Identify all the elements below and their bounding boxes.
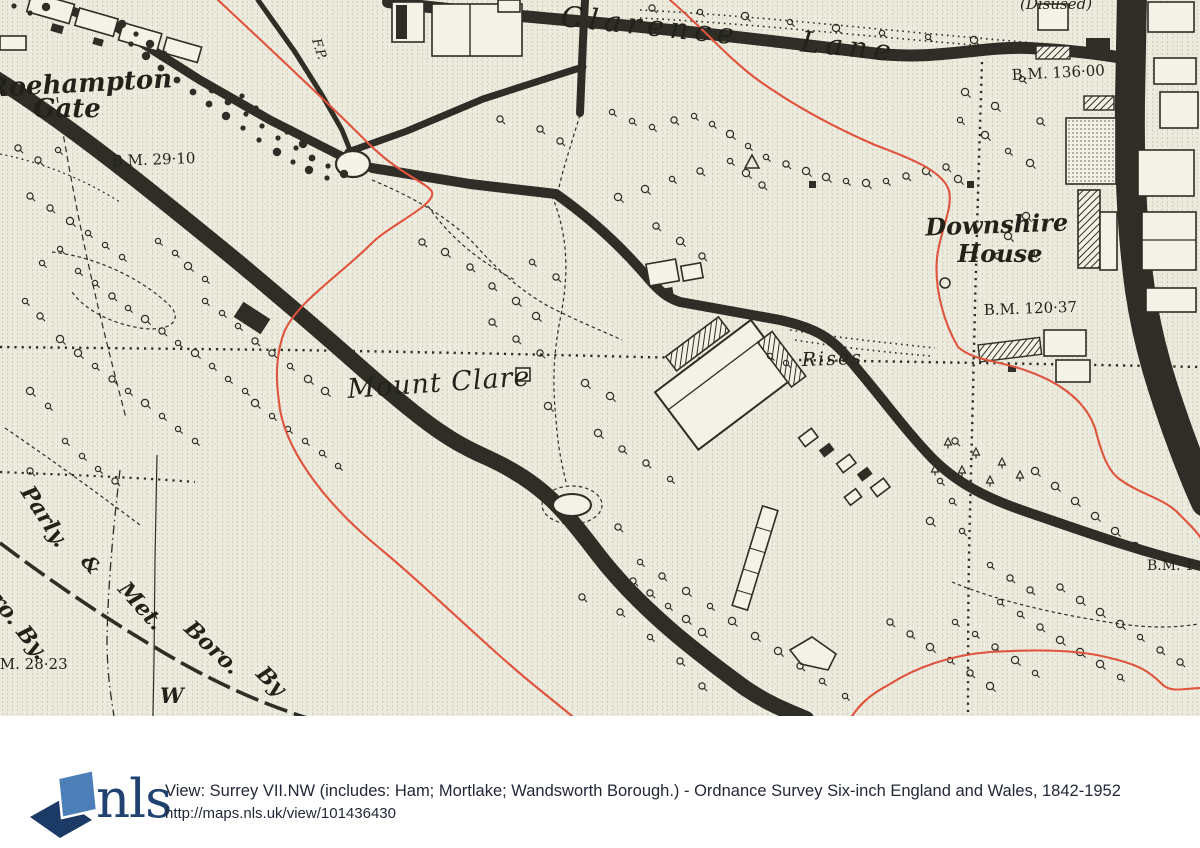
label-disused: (Disused) (1020, 0, 1092, 13)
footer-caption: View: Surrey VII.NW (includes: Ham; Mort… (165, 782, 1121, 822)
map-drawing: Roehampton Gate B.M. 29·10 Clarence Lane… (0, 0, 1200, 716)
label-boro: Boro. (178, 615, 245, 680)
label-w: W (160, 683, 186, 708)
label-downshire: Downshire (924, 208, 1069, 242)
label-by: By (250, 660, 293, 703)
label-parly: Parly. (14, 480, 73, 552)
label-gate: Gate (33, 94, 101, 124)
nls-logo-text: nls (96, 766, 171, 835)
label-bm-edge: B.M. 1 (1147, 558, 1194, 574)
label-bm-136: B.M. 136·00 (1011, 61, 1105, 84)
field-boundaries (0, 10, 1198, 627)
label-bm-28: B.M. 28·23 (0, 655, 68, 673)
buildings-layer (0, 0, 1198, 670)
label-rises: Rises (800, 347, 863, 371)
logo-parallelogram-light (58, 770, 97, 818)
roads-layer (0, 0, 1200, 716)
footer: nls View: Surrey VII.NW (includes: Ham; … (0, 716, 1200, 848)
label-boro-by-partial: ro. By. (0, 588, 54, 665)
label-bm-120: B.M. 120·37 (984, 298, 1078, 319)
circle-symbol (940, 278, 950, 288)
triangle-symbol (745, 155, 759, 168)
label-footpath: F.P. (308, 36, 329, 62)
label-clarence-lane: Clarence Lane (559, 0, 898, 68)
label-ampersand: & (76, 550, 106, 579)
map-view-title: View: Surrey VII.NW (includes: Ham; Mort… (165, 782, 1121, 802)
nls-logo-mark (30, 768, 100, 840)
map-canvas[interactable]: Roehampton Gate B.M. 29·10 Clarence Lane… (0, 0, 1200, 716)
label-house: House (957, 239, 1043, 268)
nls-logo (30, 768, 100, 845)
label-bm-29: B.M. 29·10 (112, 149, 196, 170)
page: { "map": { "labels": { "roehampton": "Ro… (0, 0, 1200, 848)
map-view-url: http://maps.nls.uk/view/101436430 (165, 805, 1121, 822)
